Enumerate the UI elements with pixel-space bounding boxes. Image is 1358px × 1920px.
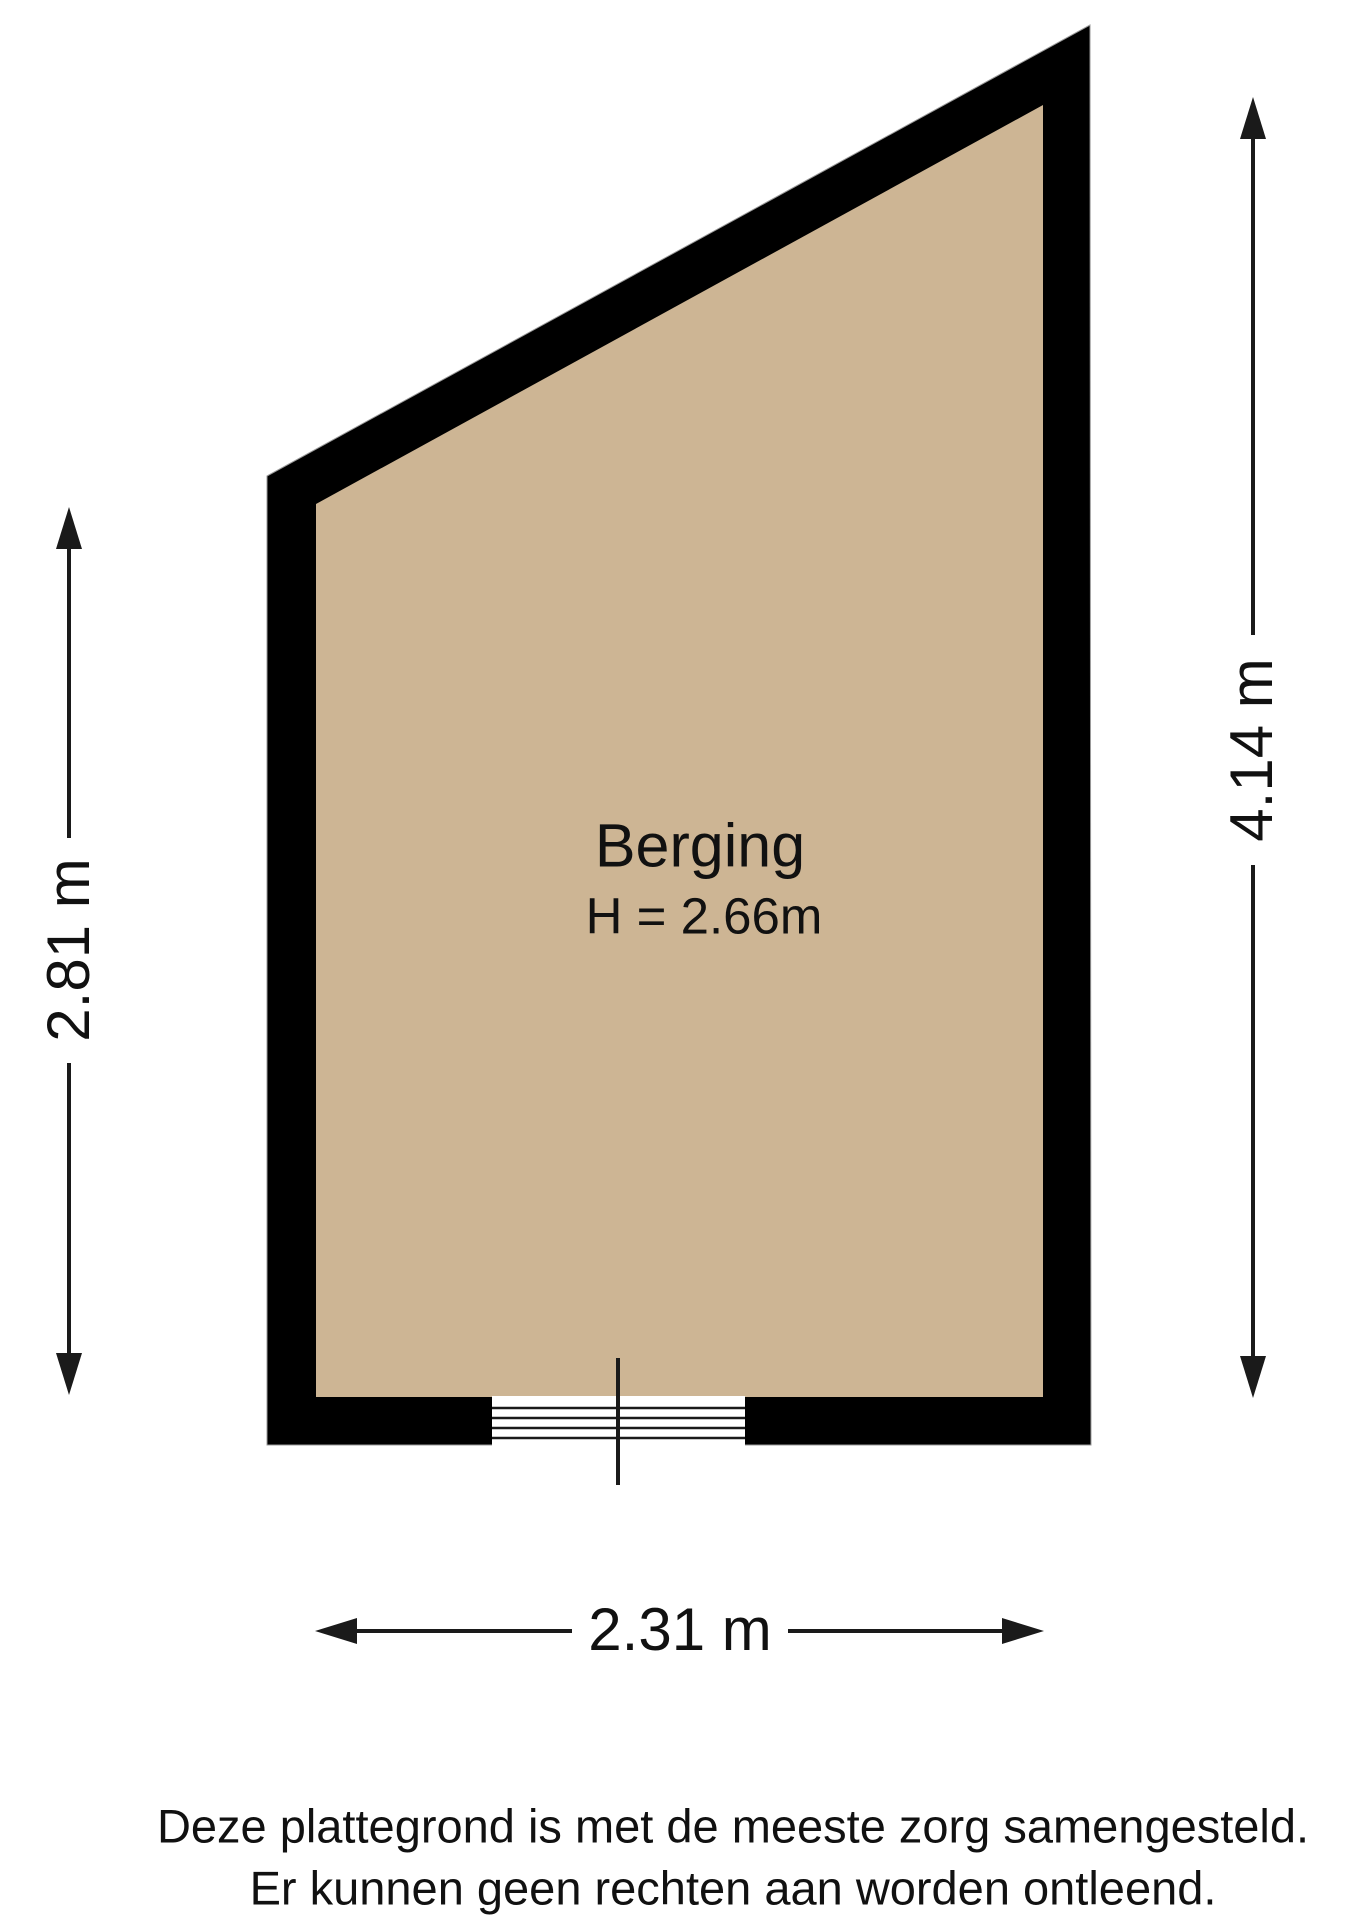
disclaimer-line-1: Deze plattegrond is met de meeste zorg s… — [157, 1803, 1309, 1850]
arrowhead-down-icon — [1240, 1356, 1266, 1398]
dimension-label-right: 4.14 m — [1222, 658, 1282, 841]
disclaimer-line-2: Er kunnen geen rechten aan worden ontlee… — [250, 1865, 1217, 1912]
dimension-label-bottom: 2.31 m — [588, 1600, 771, 1660]
room-name-label: Berging — [595, 816, 805, 877]
arrowhead-up-icon — [56, 507, 82, 549]
arrowhead-down-icon — [56, 1353, 82, 1395]
dimension-label-left: 2.81 m — [39, 858, 99, 1041]
page: { "floorplan": { "title_room": { "name":… — [0, 0, 1358, 1920]
floor-plan: Berging H = 2.66m 2.81 m 4.14 m 2.31 m D… — [0, 0, 1358, 1920]
arrowhead-right-icon — [1002, 1618, 1044, 1644]
arrowhead-left-icon — [315, 1618, 357, 1644]
arrowhead-up-icon — [1240, 97, 1266, 139]
room-ceiling-height-label: H = 2.66m — [586, 891, 823, 942]
